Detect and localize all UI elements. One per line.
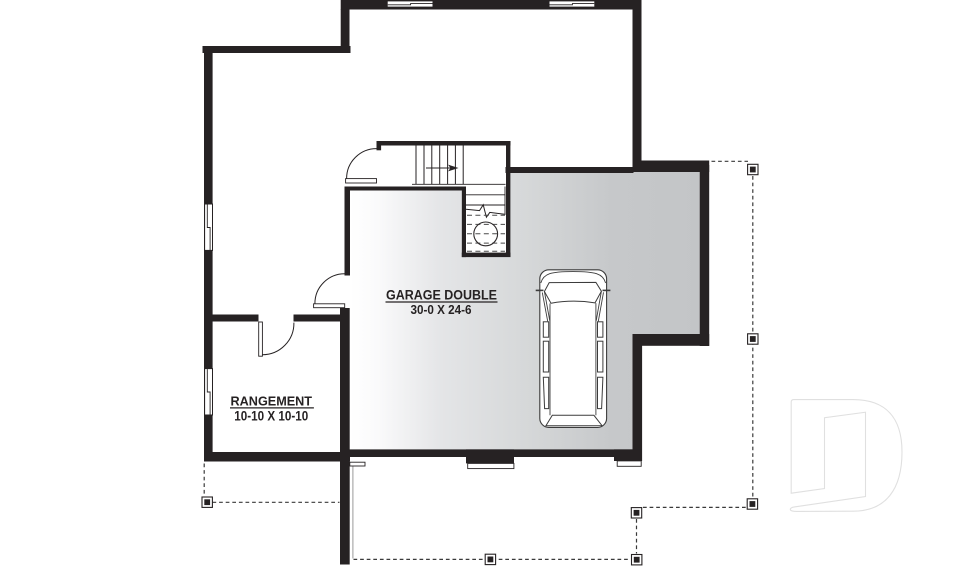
svg-text:30-0 X 24-6: 30-0 X 24-6 [411, 302, 472, 317]
svg-text:GARAGE DOUBLE: GARAGE DOUBLE [386, 288, 497, 303]
svg-text:10-10 X 10-10: 10-10 X 10-10 [234, 408, 308, 423]
svg-text:RANGEMENT: RANGEMENT [231, 394, 313, 409]
